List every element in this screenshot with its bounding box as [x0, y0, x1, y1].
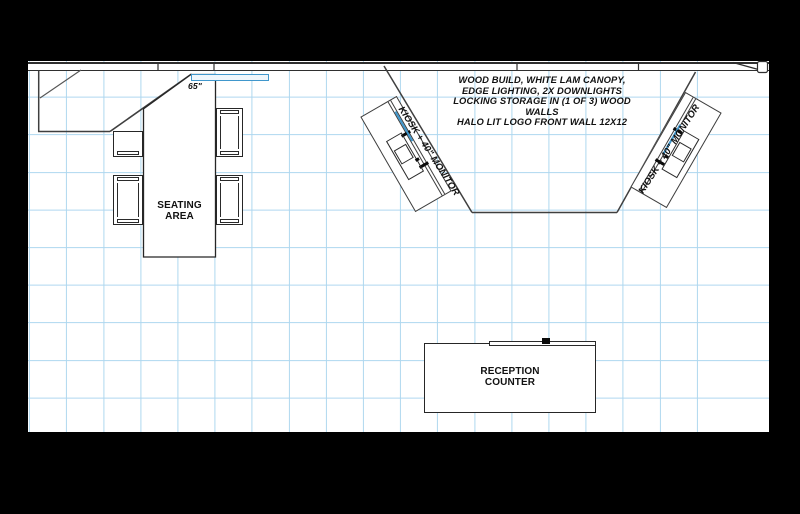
build-note-line: HALO LIT LOGO FRONT WALL 12X12 — [437, 117, 647, 128]
reception-counter-mount — [542, 338, 550, 344]
chair-rail — [117, 219, 139, 223]
chair-side-line — [117, 183, 118, 217]
chair[interactable] — [113, 175, 143, 225]
kiosk-marker — [415, 157, 420, 162]
chair-rail — [220, 219, 239, 223]
chair-side-line — [220, 116, 221, 149]
seating-area-label-line2: AREA — [143, 212, 216, 223]
chair-side-line — [238, 183, 239, 217]
chair-side-line — [138, 183, 139, 217]
build-note-line: WOOD BUILD, WHITE LAM CANOPY, — [437, 75, 647, 86]
chair[interactable] — [113, 131, 143, 157]
back-wall-canopy — [28, 62, 769, 71]
build-note-line: LOCKING STORAGE IN (1 OF 3) WOOD WALLS — [437, 96, 647, 117]
reception-counter-label-line2: COUNTER — [424, 378, 596, 389]
chair-rail — [117, 177, 139, 181]
seating-area-label: SEATING AREA — [143, 201, 216, 223]
build-notes: WOOD BUILD, WHITE LAM CANOPY, EDGE LIGHT… — [437, 75, 647, 128]
chair-side-line — [220, 183, 221, 217]
reception-counter-label: RECEPTION COUNTER — [424, 367, 596, 389]
chair[interactable] — [216, 175, 243, 225]
chair-side-line — [238, 116, 239, 149]
chair-rail — [220, 110, 239, 114]
chair-rail — [220, 177, 239, 181]
monitor-65in[interactable] — [191, 74, 269, 81]
chair-rail — [117, 151, 139, 155]
floorplan-canvas: 65" KIOSK + 40" MONITOR KIOSK + 40" MONI… — [0, 0, 800, 514]
chair[interactable] — [216, 108, 243, 157]
chair-rail — [220, 151, 239, 155]
monitor-65in-label: 65" — [183, 82, 207, 91]
